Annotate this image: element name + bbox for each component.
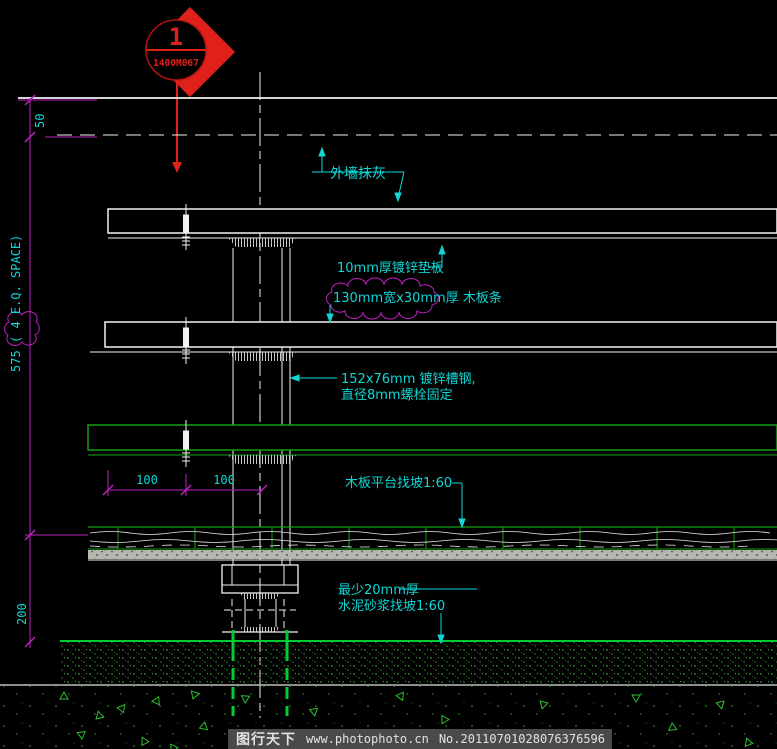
dim-100-right: 100	[213, 473, 235, 487]
footing	[222, 565, 298, 632]
note-mortar-2: 水泥砂浆找坡1:60	[338, 599, 445, 614]
leader-arrow-icon	[327, 314, 333, 322]
deck-planks	[88, 527, 777, 560]
mortar-bed-hatch	[88, 550, 777, 559]
dim-50: 50	[33, 114, 47, 128]
watermark-serial: No.20110701028076376596	[439, 732, 605, 746]
watermark-url: www.photophoto.cn	[306, 732, 429, 746]
section-code: 1400M067	[153, 58, 199, 69]
dim-575: 575	[9, 350, 23, 372]
section-marker: 1 1400M067	[145, 7, 235, 173]
watermark-site-name: 图行天下	[236, 729, 296, 749]
dim-eq-note: ( 4 E.Q. SPACE)	[9, 235, 23, 343]
bearing-plate-hatch	[228, 238, 296, 247]
watermark-bar: 图行天下 www.photophoto.cn No.20110701028076…	[228, 729, 612, 749]
note-channel-2: 直径8mm螺栓固定	[341, 388, 453, 403]
concrete-stipple-hatch	[60, 642, 777, 684]
plank-joints	[118, 527, 734, 549]
post-lines	[233, 72, 290, 718]
bearing-plate-hatch	[228, 352, 296, 361]
base-plate-hatch	[240, 593, 280, 599]
dim-100-left: 100	[136, 473, 158, 487]
note-wall-finish: 外墙抹灰	[330, 166, 386, 182]
leader-arrow-icon	[459, 519, 465, 527]
note-plate: 10mm厚镀锌垫板	[337, 260, 444, 276]
dimension-texts: 50 575 ( 4 E.Q. SPACE) 200 100 100	[9, 114, 235, 625]
cad-drawing-canvas: 1 1400M067	[0, 0, 777, 749]
note-platform: 木板平台找坡1:60	[345, 476, 452, 491]
railing-section-detail: 1 1400M067	[0, 0, 777, 749]
note-plank: 130mm宽x30mm厚 木板条	[333, 290, 502, 306]
note-mortar-1: 最少20mm厚	[338, 583, 419, 598]
dim-200: 200	[15, 603, 29, 625]
section-number: 1	[169, 23, 183, 51]
wood-grain-lines	[90, 532, 777, 548]
rail-top	[108, 209, 777, 247]
dimension-ticks	[25, 95, 267, 647]
leader-arrow-icon	[395, 193, 401, 201]
note-channel-1: 152x76mm 镀锌槽钢,	[341, 371, 476, 387]
leader-arrow-icon	[439, 246, 445, 254]
wall-lines	[18, 98, 777, 135]
section-cut-arrow	[172, 162, 182, 173]
leader-arrow-icon	[291, 375, 299, 381]
anchor-plate-hatch	[240, 627, 280, 632]
rail-middle	[90, 322, 777, 361]
rail-bottom	[88, 425, 777, 464]
bearing-plate-hatch	[228, 455, 296, 464]
leader-arrow-icon	[319, 148, 325, 156]
